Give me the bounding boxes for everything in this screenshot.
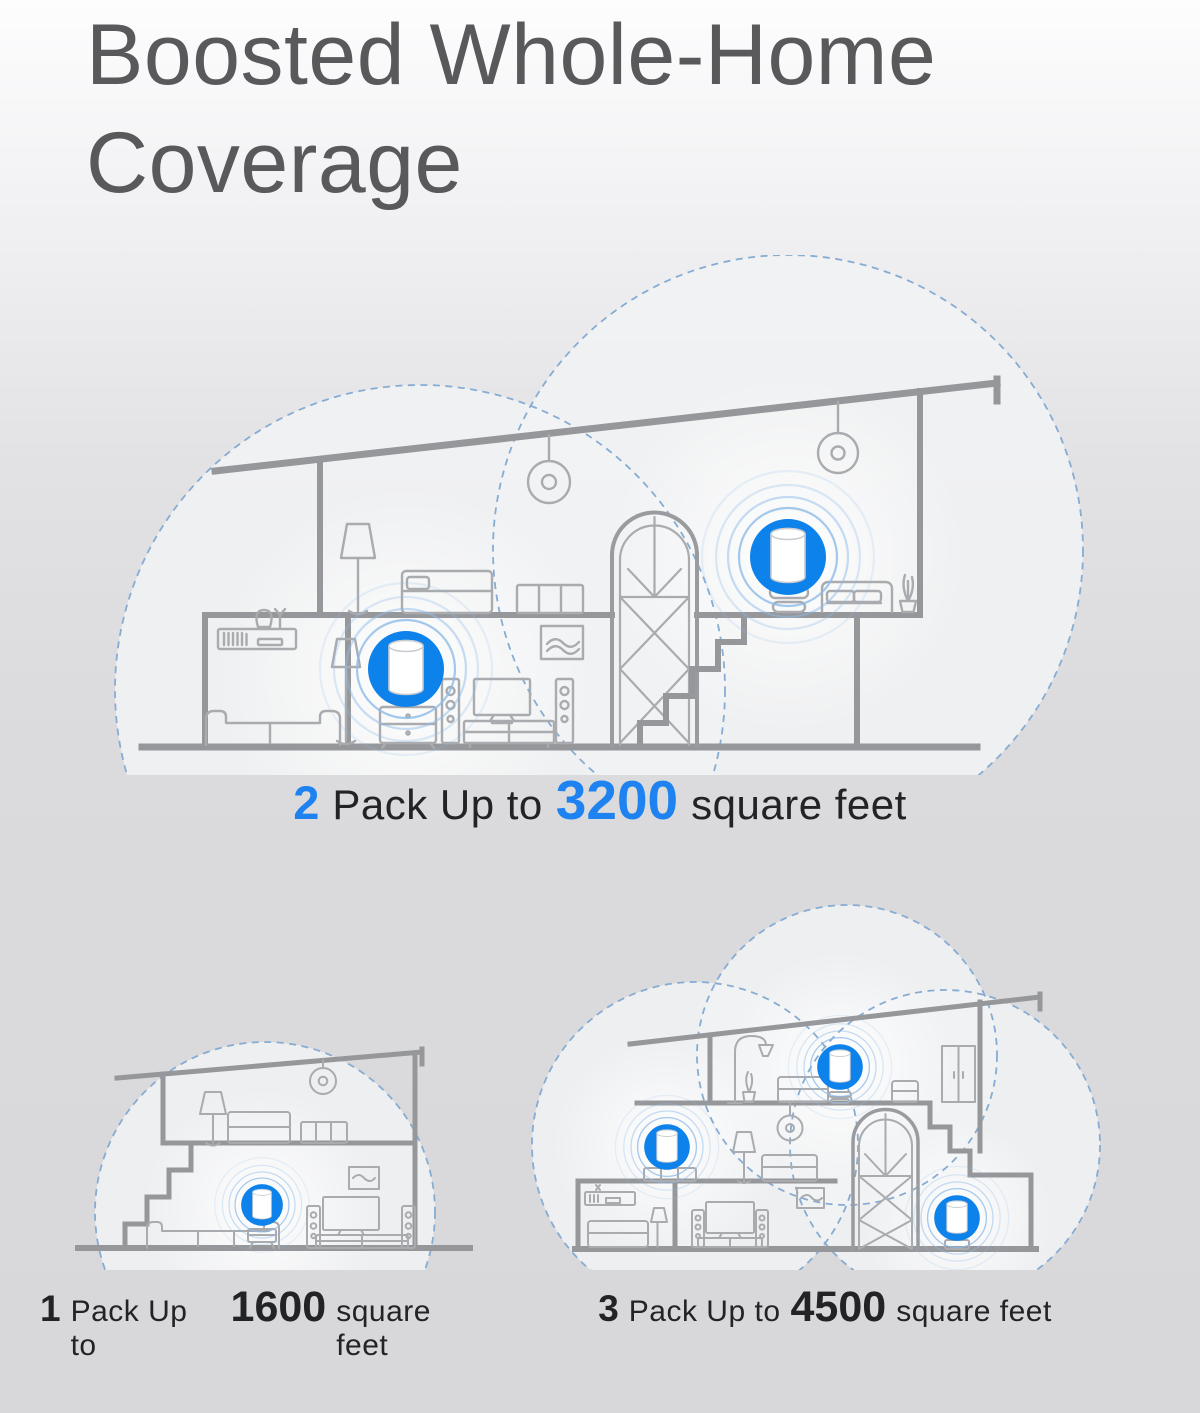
router-icon [320, 583, 492, 755]
router-icon [615, 1095, 718, 1198]
house-cutaway-2pack [0, 255, 1200, 775]
area-unit: square feet [896, 1295, 1052, 1329]
house-cutaway-3pack [520, 900, 1200, 1270]
area-unit: square feet [336, 1295, 490, 1363]
router-icon [702, 471, 874, 643]
area-value: 4500 [791, 1283, 887, 1332]
pack-count: 3 [598, 1288, 619, 1330]
area-value: 3200 [556, 768, 678, 832]
pack-label: Pack Up to [71, 1295, 221, 1363]
coverage-caption-1pack: 1 Pack Up to 1600 square feet [40, 1283, 490, 1363]
house-cutaway-1pack [40, 1000, 500, 1270]
area-unit: square feet [691, 781, 907, 829]
pack-label: Pack Up to [629, 1295, 781, 1329]
router-icon [215, 1158, 310, 1253]
coverage-caption-3pack: 3 Pack Up to 4500 square feet [595, 1283, 1055, 1332]
page-background: Boosted Whole-Home Coverage [0, 0, 1200, 1413]
router-icon [905, 1166, 1008, 1269]
area-value: 1600 [231, 1283, 327, 1332]
coverage-area-icon [532, 905, 1100, 1270]
coverage-caption-2pack: 2 Pack Up to 3200 square feet [0, 768, 1200, 832]
pack-count: 2 [293, 775, 319, 830]
coverage-area-icon [115, 255, 1083, 775]
router-icon [788, 1015, 891, 1118]
pack-label: Pack Up to [332, 781, 542, 829]
page-title: Boosted Whole-Home Coverage [86, 2, 1006, 217]
pack-count: 1 [40, 1288, 61, 1330]
